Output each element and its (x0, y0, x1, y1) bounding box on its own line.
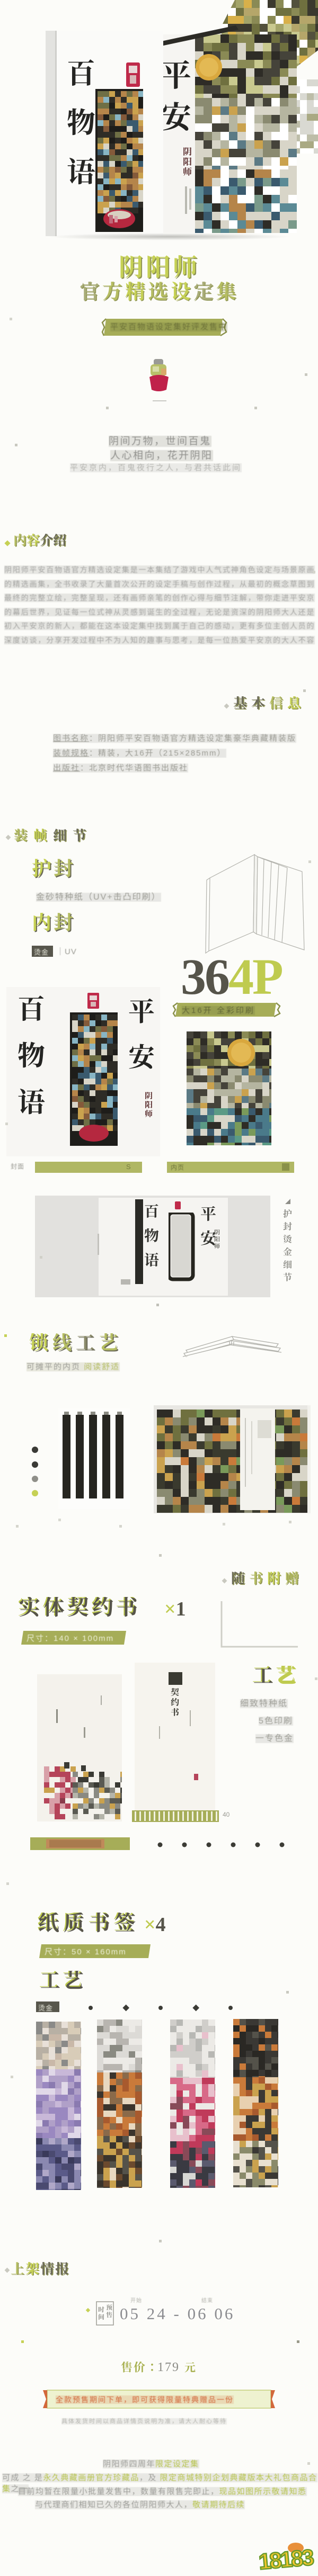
svg-text:18183: 18183 (258, 2545, 314, 2574)
